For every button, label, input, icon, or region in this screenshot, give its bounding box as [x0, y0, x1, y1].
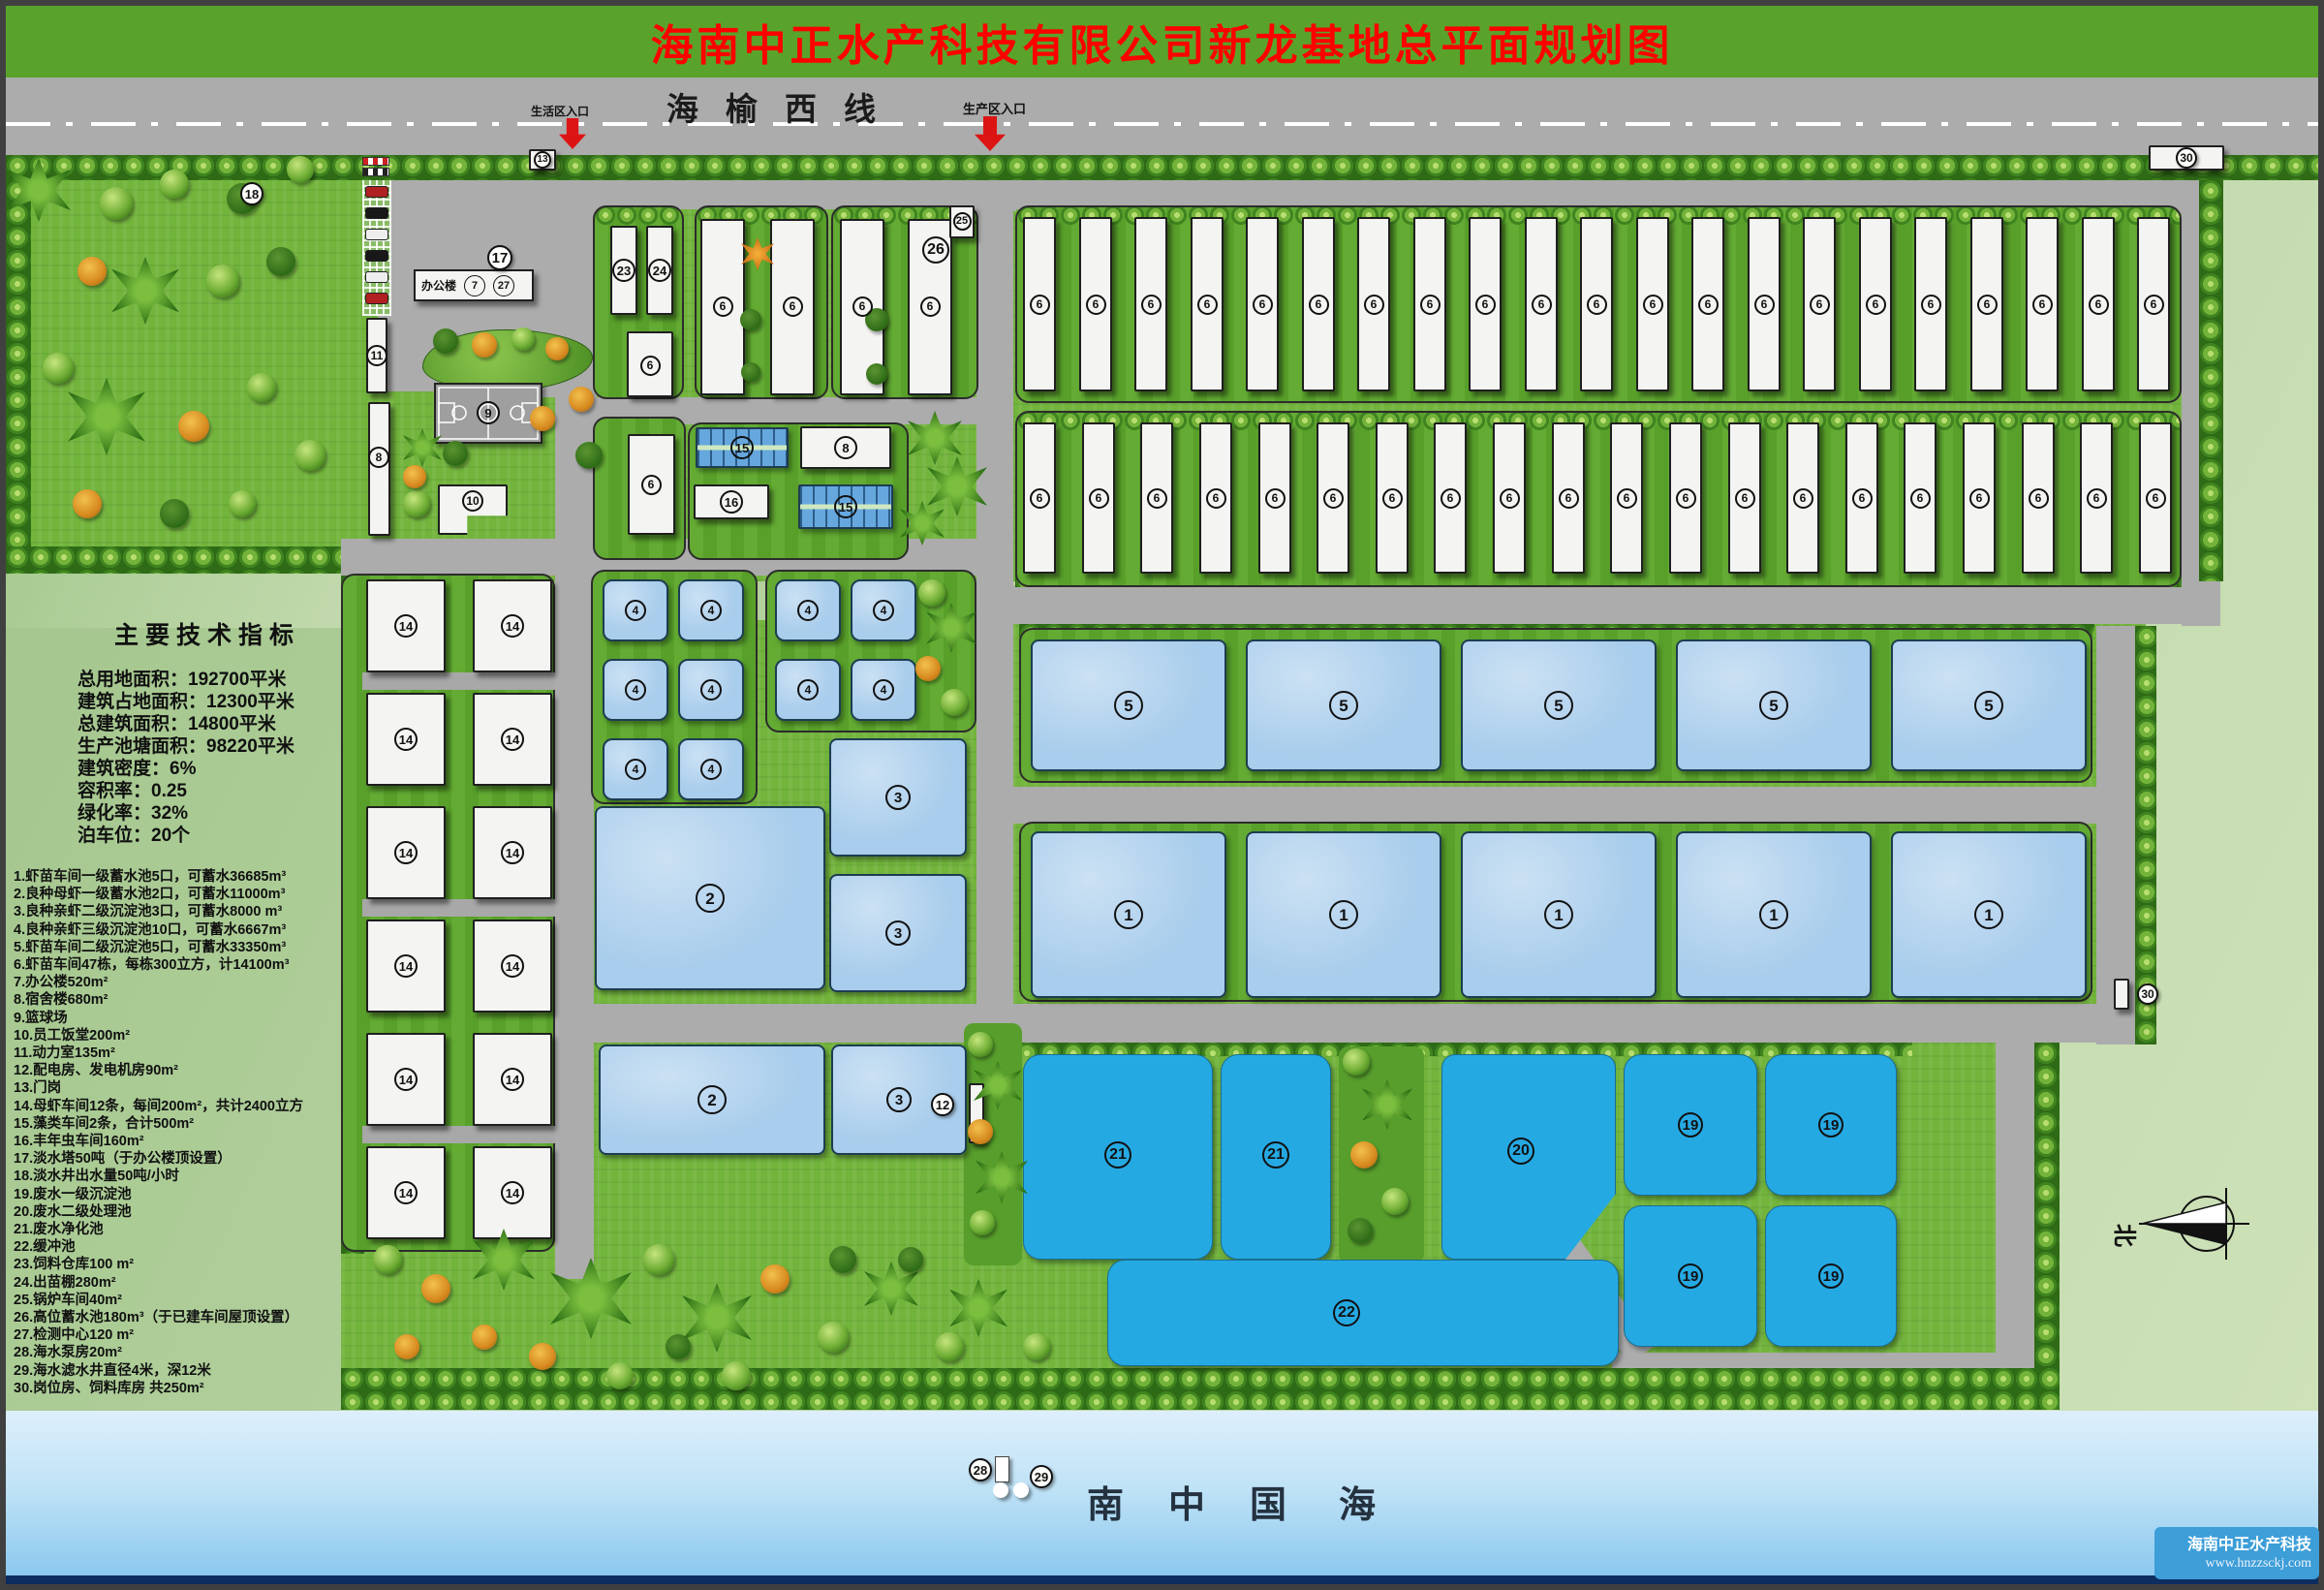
label-4: 4 [700, 759, 722, 780]
label-5: 5 [1329, 691, 1358, 720]
bush-tree-icon [1023, 1333, 1050, 1360]
label-8: 8 [834, 436, 857, 459]
tree-belt-right-mid [2135, 626, 2156, 1044]
road-h2-right [1013, 585, 2220, 624]
label-7: 7 [464, 275, 485, 296]
bush-tree-icon [722, 1361, 751, 1390]
label-6: 6 [2144, 295, 2164, 315]
orange-tree-icon [178, 411, 209, 442]
bush-tree-icon [918, 579, 945, 607]
orange-tree-icon [760, 1264, 790, 1294]
highway-name: 海榆西线 [666, 83, 903, 130]
car-icon [365, 186, 388, 198]
label-17: 17 [487, 245, 512, 270]
label-14: 14 [501, 954, 524, 978]
filter-well-icon [993, 1482, 1008, 1498]
dark-tree-icon [433, 328, 458, 354]
label-2: 2 [697, 1085, 727, 1114]
legend-item: 13.门岗 [14, 1079, 348, 1097]
label-2: 2 [696, 884, 725, 913]
label-21: 21 [1262, 1141, 1289, 1169]
label-8: 8 [368, 447, 389, 468]
bush-tree-icon [1343, 1048, 1370, 1076]
orange-tree-icon [73, 489, 102, 518]
label-6: 6 [641, 475, 662, 495]
label-14: 14 [394, 614, 418, 638]
dark-tree-icon [575, 442, 603, 469]
label-23: 23 [612, 259, 635, 282]
legend-item: 21.废水净化池 [14, 1221, 348, 1238]
label-20: 20 [1507, 1138, 1534, 1165]
label-3: 3 [885, 785, 911, 810]
building-8 [368, 402, 390, 536]
life-entrance-label: 生活区入口 [531, 103, 589, 119]
dark-tree-icon [829, 1246, 856, 1273]
tech-lines: 总用地面积：192700平米建筑占地面积：12300平米总建筑面积：14800平… [77, 669, 300, 847]
label-25: 25 [953, 212, 972, 231]
label-14: 14 [501, 841, 524, 864]
label-4: 4 [625, 600, 646, 621]
label-11: 11 [366, 345, 387, 366]
orange-tree-icon [545, 337, 569, 360]
tech-indicators-panel: 主要技术指标 总用地面积：192700平米建筑占地面积：12300平米总建筑面积… [77, 616, 300, 847]
label-12: 12 [931, 1093, 954, 1116]
label-4: 4 [700, 600, 722, 621]
legend-item: 17.淡水塔50吨（于办公楼顶设置） [14, 1150, 348, 1168]
road-14-c [362, 1126, 555, 1143]
label-6: 6 [1852, 488, 1873, 509]
page-title: 海南中正水产科技有限公司新龙基地总平面规划图 [651, 11, 1674, 73]
label-14: 14 [394, 954, 418, 978]
tech-line: 容积率：0.25 [77, 780, 300, 802]
label-10: 10 [462, 490, 483, 512]
bush-tree-icon [643, 1244, 674, 1275]
label-24: 24 [648, 259, 671, 282]
bush-tree-icon [511, 327, 535, 351]
label-5: 5 [1759, 691, 1788, 720]
label-28: 28 [969, 1458, 992, 1481]
sea-name-char: 中 [1168, 1475, 1205, 1528]
legend-item: 2.良种母虾一级蓄水池2口，可蓄水11000m³ [14, 886, 348, 903]
legend-item: 3.良种亲虾二级沉淀池3口，可蓄水8000 m³ [14, 903, 348, 920]
legend-item: 6.虾苗车间47栋，每栋300立方，计14100m³ [14, 956, 348, 974]
label-6: 6 [1089, 488, 1109, 509]
car-icon [365, 293, 388, 304]
orange-tree-icon [569, 387, 594, 412]
legend-item: 15.藻类车间2条，合计500m² [14, 1115, 348, 1133]
road-v10 [1996, 1043, 2034, 1355]
gate-barrier-icon [362, 157, 389, 166]
label-6: 6 [1197, 295, 1218, 315]
label-29: 29 [1030, 1465, 1053, 1488]
north-compass-icon: 北 [2102, 1174, 2257, 1281]
label-6: 6 [1030, 295, 1050, 315]
label-9: 9 [477, 401, 500, 424]
legend-item: 30.岗位房、饲料库房 共250m² [14, 1380, 348, 1397]
road-v3 [555, 388, 594, 1279]
bush-tree-icon [935, 1332, 964, 1361]
label-6: 6 [713, 296, 733, 317]
bush-tree-icon [287, 156, 314, 183]
tree-belt-park-bottom [6, 546, 341, 574]
label-6: 6 [852, 296, 873, 317]
dark-tree-icon [443, 441, 468, 466]
label-6: 6 [2146, 488, 2166, 509]
label-6: 6 [2089, 295, 2109, 315]
label-1: 1 [1759, 900, 1788, 929]
legend-item: 9.篮球场 [14, 1010, 348, 1027]
watermark: 海南中正水产科技 www.hnzzsckj.com [2154, 1527, 2319, 1579]
orange-tree-icon [472, 332, 497, 358]
label-19: 19 [1818, 1263, 1844, 1289]
label-6: 6 [1500, 488, 1520, 509]
bush-tree-icon [373, 1245, 402, 1274]
legend-item: 5.虾苗车间二级沉淀池5口，可蓄水33350m³ [14, 939, 348, 956]
legend-item: 27.检测中心120 m² [14, 1326, 348, 1344]
label-6: 6 [1086, 295, 1106, 315]
label-6: 6 [1617, 488, 1637, 509]
tech-line: 建筑密度：6% [77, 758, 300, 780]
label-6: 6 [920, 296, 941, 317]
label-6: 6 [1910, 488, 1931, 509]
legend-item: 20.废水二级处理池 [14, 1203, 348, 1221]
label-16: 16 [720, 490, 743, 514]
dark-tree-icon [1348, 1218, 1373, 1243]
label-21: 21 [1104, 1141, 1131, 1169]
tech-line: 泊车位：20个 [77, 825, 300, 847]
label-6: 6 [2087, 488, 2107, 509]
sea-pump-house-icon [995, 1456, 1009, 1482]
road-h4 [341, 1004, 2135, 1043]
label-6: 6 [783, 296, 803, 317]
orange-tree-icon [472, 1325, 497, 1350]
tech-line: 生产池塘面积：98220平米 [77, 735, 300, 758]
bush-tree-icon [968, 1032, 993, 1057]
highway [6, 78, 2318, 155]
legend-item: 14.母虾车间12条，每间200m²，共计2400立方 [14, 1098, 348, 1115]
prod-entrance-label: 生产区入口 [963, 99, 1026, 117]
label-6: 6 [1364, 295, 1384, 315]
orange-tree-icon [403, 465, 426, 488]
dark-tree-icon [898, 1247, 923, 1272]
label-14: 14 [394, 1181, 418, 1204]
label-14: 14 [501, 1068, 524, 1091]
dark-tree-icon [866, 363, 887, 385]
legend-item: 8.宿舍楼680m² [14, 991, 348, 1009]
label-19: 19 [1678, 1263, 1703, 1289]
label-6: 6 [2032, 295, 2053, 315]
legend-item: 16.丰年虫车间160m² [14, 1133, 348, 1150]
label-3: 3 [885, 920, 911, 946]
label-15: 15 [730, 436, 754, 459]
dark-tree-icon [160, 499, 189, 528]
bush-tree-icon [206, 265, 239, 297]
label-6: 6 [1382, 488, 1403, 509]
label-14: 14 [501, 1181, 524, 1204]
legend-item: 11.动力室135m² [14, 1044, 348, 1062]
svg-text:北: 北 [2111, 1224, 2137, 1247]
legend-item: 12.配电房、发电机房90m² [14, 1062, 348, 1079]
label-5: 5 [1974, 691, 2003, 720]
label-5: 5 [1544, 691, 1573, 720]
road-14-b [362, 899, 555, 917]
tech-line: 建筑占地面积：12300平米 [77, 691, 300, 713]
orange-tree-icon [530, 406, 555, 431]
bush-tree-icon [43, 353, 74, 384]
orange-tree-icon [1350, 1141, 1378, 1169]
site-plan-canvas: 海南中正水产科技有限公司新龙基地总平面规划图 海榆西线 生活区入口 生产区入口 … [0, 0, 2324, 1590]
road-h3 [1013, 787, 2098, 824]
label-6: 6 [1030, 488, 1050, 509]
bush-tree-icon [1381, 1188, 1409, 1215]
label-6: 6 [1147, 488, 1167, 509]
legend-item: 18.淡水井出水量50吨/小时 [14, 1168, 348, 1185]
tech-title: 主要技术指标 [114, 616, 300, 651]
label-6: 6 [1309, 295, 1329, 315]
bush-tree-icon [403, 490, 430, 517]
legend-item: 29.海水滤水井直径4米，深12米 [14, 1362, 348, 1380]
label-1: 1 [1544, 900, 1573, 929]
orange-tree-icon [968, 1119, 993, 1144]
label-1: 1 [1329, 900, 1358, 929]
car-icon [365, 207, 388, 219]
orange-tree-icon [77, 257, 107, 286]
tech-line: 总用地面积：192700平米 [77, 669, 300, 691]
label-14: 14 [501, 728, 524, 751]
label-4: 4 [625, 679, 646, 701]
tree-belt-top [6, 155, 2318, 180]
bush-tree-icon [941, 689, 968, 716]
road-14-a [362, 672, 555, 690]
legend-item: 4.良种亲虾三级沉淀池10口，可蓄水6667m³ [14, 921, 348, 939]
legend-item: 23.饲料仓库100 m² [14, 1256, 348, 1273]
label-6: 6 [1977, 295, 1998, 315]
watermark-company: 海南中正水产科技 [2187, 1536, 2311, 1555]
label-6: 6 [1810, 295, 1830, 315]
block-workshops-row2 [1015, 411, 2182, 587]
bush-tree-icon [606, 1362, 634, 1389]
bush-tree-icon [818, 1322, 849, 1353]
label-1: 1 [1974, 900, 2003, 929]
orange-tree-icon [915, 656, 941, 681]
label-6: 6 [1754, 295, 1775, 315]
legend-item: 28.海水泵房20m² [14, 1344, 348, 1361]
legend-item: 1.虾苗车间一级蓄水池5口，可蓄水36685m³ [14, 868, 348, 886]
sea-name-char: 国 [1250, 1475, 1286, 1528]
dark-tree-icon [266, 247, 295, 276]
label-4: 4 [797, 679, 819, 701]
label-22: 22 [1333, 1299, 1360, 1326]
legend-item: 19.废水一级沉淀池 [14, 1186, 348, 1203]
label-6: 6 [1866, 295, 1886, 315]
bush-tree-icon [100, 187, 133, 220]
legend-item: 25.锅炉车间40m² [14, 1292, 348, 1309]
label-6: 6 [1265, 488, 1286, 509]
label-6: 6 [1141, 295, 1162, 315]
label-6: 6 [640, 356, 661, 376]
legend-item: 22.缓冲池 [14, 1238, 348, 1256]
label-14: 14 [394, 1068, 418, 1091]
legend-item: 10.员工饭堂200m² [14, 1027, 348, 1044]
label-27: 27 [493, 275, 514, 296]
label-6: 6 [1206, 488, 1226, 509]
label-4: 4 [873, 600, 894, 621]
label-14: 14 [501, 614, 524, 638]
label-6: 6 [1969, 488, 1990, 509]
sea-name-char: 海 [1339, 1475, 1376, 1528]
label-26: 26 [922, 236, 949, 264]
label-6: 6 [1441, 488, 1461, 509]
tree-belt-right-top [2199, 180, 2223, 581]
tech-line: 总建筑面积：14800平米 [77, 713, 300, 735]
label-19: 19 [1678, 1112, 1703, 1138]
filter-well-icon [1013, 1482, 1029, 1498]
pond-22 [1107, 1260, 1619, 1366]
tree-belt-bottom [341, 1368, 2060, 1410]
gate-barrier-icon [362, 168, 389, 176]
label-6: 6 [1735, 488, 1755, 509]
label-5: 5 [1114, 691, 1143, 720]
orange-tree-icon [529, 1343, 556, 1370]
label-6: 6 [2029, 488, 2049, 509]
highway-centerline [6, 122, 2318, 126]
tree-belt-left [6, 180, 31, 574]
tech-line: 绿化率：32% [77, 802, 300, 825]
car-icon [365, 271, 388, 283]
orange-tree-icon [394, 1334, 419, 1359]
office-label: 办公楼 [421, 277, 456, 294]
label-3: 3 [886, 1087, 912, 1112]
bottom-bar [6, 1575, 2318, 1584]
label-6: 6 [1698, 295, 1719, 315]
label-6: 6 [1587, 295, 1607, 315]
legend-item: 26.高位蓄水池180m³（于已建车间屋顶设置） [14, 1309, 348, 1326]
legend-item: 24.出苗棚280m² [14, 1274, 348, 1292]
label-6: 6 [1420, 295, 1441, 315]
orange-tree-icon [421, 1274, 450, 1303]
label-6: 6 [1475, 295, 1496, 315]
label-4: 4 [873, 679, 894, 701]
label-30: 30 [2137, 983, 2158, 1005]
bush-tree-icon [229, 490, 256, 517]
title-bar: 海南中正水产科技有限公司新龙基地总平面规划图 [6, 6, 2318, 78]
bush-tree-icon [247, 373, 276, 402]
dark-tree-icon [740, 309, 761, 330]
car-icon [365, 250, 388, 262]
building-30 [2114, 979, 2129, 1010]
label-6: 6 [1793, 488, 1813, 509]
label-1: 1 [1114, 900, 1143, 929]
bush-tree-icon [970, 1210, 995, 1235]
label-18: 18 [240, 182, 263, 205]
dark-tree-icon [741, 362, 760, 382]
label-19: 19 [1818, 1112, 1844, 1138]
label-4: 4 [625, 759, 646, 780]
label-4: 4 [700, 679, 722, 701]
label-6: 6 [1559, 488, 1579, 509]
label-6: 6 [1676, 488, 1696, 509]
car-icon [365, 229, 388, 240]
sea-name-char: 南 [1087, 1475, 1124, 1528]
label-6: 6 [1532, 295, 1552, 315]
label-6: 6 [1921, 295, 1941, 315]
south-china-sea: 南 中 国 海 [6, 1411, 2318, 1584]
watermark-url: www.hnzzsckj.com [2205, 1555, 2311, 1572]
road-v9 [976, 180, 1013, 1006]
legend-list: 1.虾苗车间一级蓄水池5口，可蓄水36685m³2.良种母虾一级蓄水池2口，可蓄… [14, 868, 348, 1397]
legend-item: 7.办公楼520m² [14, 974, 348, 991]
tree-belt-right-bottom [2034, 1043, 2060, 1372]
label-30: 30 [2176, 147, 2197, 169]
dark-tree-icon [666, 1334, 691, 1359]
label-6: 6 [1323, 488, 1344, 509]
label-14: 14 [394, 841, 418, 864]
label-14: 14 [394, 728, 418, 751]
label-13: 13 [534, 151, 551, 169]
bush-tree-icon [294, 440, 325, 471]
label-15: 15 [834, 495, 857, 518]
label-6: 6 [1253, 295, 1273, 315]
label-4: 4 [797, 600, 819, 621]
label-6: 6 [1643, 295, 1663, 315]
bush-tree-icon [160, 170, 189, 199]
office-building: 办公楼 7 27 [414, 269, 534, 301]
